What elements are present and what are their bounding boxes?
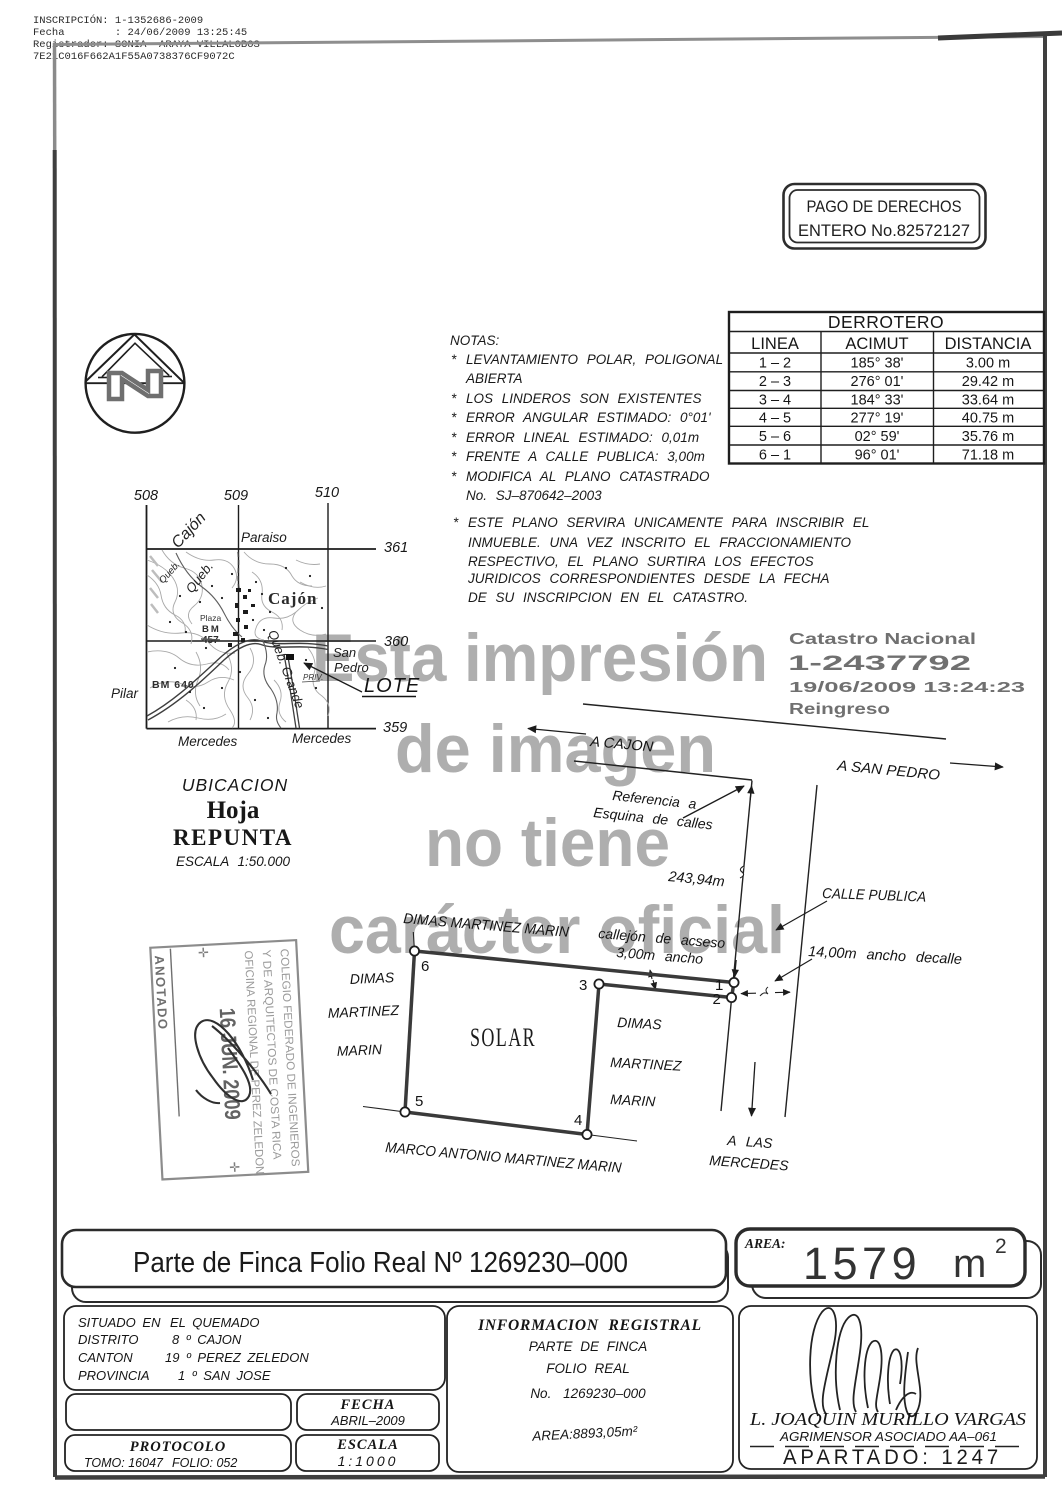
- svg-text:4 – 5: 4 – 5: [759, 411, 791, 427]
- svg-text:8 º CAJON: 8 º CAJON: [172, 1332, 242, 1347]
- svg-text:*: *: [451, 352, 457, 367]
- svg-text:35.76 m: 35.76 m: [962, 429, 1014, 445]
- svg-text:508: 508: [134, 488, 158, 504]
- svg-text:MARCO ANTONIO MARTINEZ MARIN: MARCO ANTONIO MARTINEZ MARIN: [385, 1140, 623, 1177]
- svg-text:RESPECTIVO, EL PLANO SURTIRA L: RESPECTIVO, EL PLANO SURTIRA LOS EFECTOS: [468, 554, 814, 569]
- svg-text:2: 2: [995, 1235, 1007, 1258]
- svg-text:6 – 1: 6 – 1: [759, 448, 791, 464]
- svg-text:361: 361: [384, 540, 408, 556]
- svg-text:AGRIMENSOR ASOCIADO AA–061: AGRIMENSOR ASOCIADO AA–061: [779, 1429, 997, 1444]
- svg-text:ENTERO No.82572127: ENTERO No.82572127: [798, 222, 970, 240]
- svg-text:CANTON: CANTON: [78, 1350, 133, 1365]
- svg-text:SITUADO EN: SITUADO EN: [78, 1315, 161, 1330]
- svg-text:ERROR ANGULAR ESTIMADO: 0°01': ERROR ANGULAR ESTIMADO: 0°01': [466, 410, 711, 425]
- svg-text:3: 3: [579, 977, 587, 994]
- svg-text:MARTINEZ: MARTINEZ: [610, 1054, 682, 1074]
- svg-text:ACIMUT: ACIMUT: [845, 335, 908, 353]
- svg-text:FRENTE A CALLE PUBLICA: 3,00m: FRENTE A CALLE PUBLICA: 3,00m: [466, 449, 705, 464]
- svg-text:FOLIO: 052: FOLIO: 052: [172, 1456, 237, 1470]
- svg-text:DIMAS: DIMAS: [617, 1014, 663, 1032]
- svg-text:1:1000: 1:1000: [338, 1453, 399, 1469]
- svg-text:INFORMACION REGISTRAL: INFORMACION REGISTRAL: [477, 1317, 702, 1334]
- svg-text:A SAN PEDRO: A SAN PEDRO: [836, 758, 941, 784]
- svg-text:33.64 m: 33.64 m: [962, 393, 1014, 409]
- svg-text:EL QUEMADO: EL QUEMADO: [170, 1315, 259, 1330]
- svg-text:96° 01': 96° 01': [855, 448, 900, 464]
- svg-text:LOTE: LOTE: [364, 675, 420, 697]
- svg-text:No. 1269230–000: No. 1269230–000: [530, 1386, 646, 1401]
- svg-text:*: *: [451, 430, 457, 445]
- svg-text:276° 01': 276° 01': [851, 374, 904, 390]
- svg-text:277° 19': 277° 19': [851, 411, 904, 427]
- svg-text:ESCALA 1:50.000: ESCALA 1:50.000: [176, 854, 291, 869]
- svg-text:02° 59': 02° 59': [855, 429, 900, 445]
- svg-text:PROVINCIA: PROVINCIA: [78, 1368, 150, 1383]
- svg-text:1 – 2: 1 – 2: [759, 356, 791, 372]
- svg-text:ABRIL–2009: ABRIL–2009: [330, 1413, 405, 1428]
- svg-text:✛: ✛: [195, 947, 211, 959]
- svg-text:CALLE PUBLICA: CALLE PUBLICA: [822, 886, 926, 906]
- svg-text:Reingreso: Reingreso: [789, 701, 890, 718]
- svg-text:2 – 3: 2 – 3: [759, 374, 791, 390]
- svg-text:m: m: [953, 1242, 986, 1286]
- svg-text:2: 2: [713, 991, 721, 1008]
- svg-text:4: 4: [574, 1112, 582, 1129]
- svg-text:Cajón: Cajón: [268, 589, 317, 608]
- svg-text:PRIV.: PRIV.: [303, 673, 323, 682]
- svg-text:*: *: [451, 391, 457, 406]
- svg-text:Queb.: Queb.: [183, 559, 217, 596]
- svg-text:L. JOAQUIN MURILLO VARGAS: L. JOAQUIN MURILLO VARGAS: [749, 1409, 1026, 1429]
- svg-text:MARIN: MARIN: [336, 1041, 383, 1059]
- svg-text:Parte de Finca Folio Real Nº 1: Parte de Finca Folio Real Nº 1269230–000: [133, 1247, 628, 1279]
- svg-text:ABIERTA: ABIERTA: [465, 371, 523, 386]
- svg-text:*: *: [451, 469, 457, 484]
- svg-text:San: San: [333, 645, 356, 660]
- svg-text:184° 33': 184° 33': [851, 393, 904, 409]
- svg-text:1-2437792: 1-2437792: [788, 652, 971, 675]
- svg-text:PARTE DE FINCA: PARTE DE FINCA: [529, 1339, 648, 1354]
- svg-text:3 – 4: 3 – 4: [759, 393, 791, 409]
- svg-text:UBICACION: UBICACION: [182, 775, 288, 795]
- svg-text:TOMO: 16047: TOMO: 16047: [84, 1456, 164, 1470]
- svg-text:SOLAR: SOLAR: [470, 1023, 536, 1052]
- svg-text:*: *: [451, 449, 457, 464]
- svg-text:Catastro Nacional: Catastro Nacional: [789, 631, 976, 648]
- svg-text:Queb.: Queb.: [157, 559, 182, 586]
- svg-text:PAGO DE DERECHOS: PAGO DE DERECHOS: [807, 198, 962, 216]
- svg-text:A LAS: A LAS: [726, 1132, 774, 1151]
- svg-text:ESTE PLANO SERVIRA UNICAMENTE: ESTE PLANO SERVIRA UNICAMENTE PARA INSCR…: [468, 515, 869, 530]
- svg-text:40.75 m: 40.75 m: [962, 411, 1014, 427]
- svg-text:APARTADO: 1247: APARTADO: 1247: [783, 1446, 1002, 1469]
- svg-text:AREA:: AREA:: [744, 1236, 786, 1251]
- svg-text:510: 510: [315, 485, 339, 501]
- svg-text:Paraiso: Paraiso: [241, 530, 287, 545]
- svg-text:5: 5: [415, 1093, 423, 1110]
- svg-text:6: 6: [421, 958, 429, 975]
- svg-text:LOS LINDEROS SON EXISTENTES: LOS LINDEROS SON EXISTENTES: [466, 391, 702, 406]
- svg-text:185° 38': 185° 38': [851, 356, 904, 372]
- svg-text:7E21C016F662A1F55A0738376CF907: 7E21C016F662A1F55A0738376CF9072C: [33, 51, 235, 63]
- svg-text:*: *: [451, 410, 457, 425]
- svg-text:PROTOCOLO: PROTOCOLO: [130, 1439, 227, 1455]
- svg-text:MERCEDES: MERCEDES: [709, 1152, 790, 1174]
- svg-text:JURIDICOS CORRESPONDIENTES DES: JURIDICOS CORRESPONDIENTES DESDE LA FECH…: [467, 571, 830, 586]
- svg-text:REPUNTA: REPUNTA: [173, 825, 293, 850]
- svg-text:1579: 1579: [803, 1238, 921, 1289]
- svg-text:BM: BM: [202, 624, 221, 635]
- svg-text:509: 509: [224, 488, 248, 504]
- svg-text:INSCRIPCIÓN: 1-1352686-2009: INSCRIPCIÓN: 1-1352686-2009: [33, 13, 203, 27]
- svg-text:BM 640: BM 640: [152, 679, 195, 691]
- svg-text:Fecha : 24/06/2009 13:2: Fecha : 24/06/2009 13:25:45: [33, 27, 247, 39]
- svg-text:DIMAS: DIMAS: [349, 969, 395, 987]
- svg-text:5 – 6: 5 – 6: [759, 429, 791, 445]
- svg-text:FOLIO REAL: FOLIO REAL: [546, 1361, 630, 1376]
- svg-text:14,00m ancho decalle: 14,00m ancho decalle: [808, 944, 963, 968]
- svg-text:NOTAS:: NOTAS:: [450, 333, 500, 348]
- svg-text:71.18 m: 71.18 m: [962, 448, 1014, 464]
- svg-text:DERROTERO: DERROTERO: [828, 312, 944, 332]
- svg-text:DE SU INSCRIPCION EN EL CATAST: DE SU INSCRIPCION EN EL CATASTRO.: [468, 590, 748, 605]
- svg-text:de imagen: de imagen: [395, 711, 716, 787]
- svg-text:ERROR LINEAL ESTIMADO: 0,01m: ERROR LINEAL ESTIMADO: 0,01m: [466, 430, 699, 445]
- svg-text:1 º SAN JOSE: 1 º SAN JOSE: [178, 1368, 271, 1383]
- svg-text:Mercedes: Mercedes: [178, 734, 238, 749]
- svg-text:19 º PEREZ ZELEDON: 19 º PEREZ ZELEDON: [165, 1350, 309, 1365]
- svg-text:360: 360: [384, 634, 408, 650]
- svg-text:✛: ✛: [227, 1161, 243, 1173]
- svg-text:No. SJ–870642–2003: No. SJ–870642–2003: [466, 488, 602, 503]
- svg-text:MODIFICA AL PLANO CATASTRADO: MODIFICA AL PLANO CATASTRADO: [466, 469, 710, 484]
- svg-text:DISTRITO: DISTRITO: [78, 1332, 138, 1347]
- svg-text:*: *: [453, 515, 459, 530]
- svg-text:Hoja: Hoja: [207, 797, 260, 824]
- svg-text:243,94m: 243,94m: [667, 869, 726, 890]
- svg-text:19/06/2009 13:24:23: 19/06/2009 13:24:23: [789, 680, 1025, 696]
- svg-text:LEVANTAMIENTO POLAR, POLIGONAL: LEVANTAMIENTO POLAR, POLIGONAL: [466, 352, 723, 367]
- svg-text:3.00 m: 3.00 m: [966, 356, 1010, 372]
- svg-text:359: 359: [383, 720, 407, 736]
- svg-text:ESCALA: ESCALA: [336, 1437, 399, 1453]
- svg-text:Pedro: Pedro: [334, 660, 369, 675]
- svg-text:29.42 m: 29.42 m: [962, 374, 1014, 390]
- svg-text:Mercedes: Mercedes: [292, 731, 352, 746]
- svg-text:DISTANCIA: DISTANCIA: [945, 335, 1032, 353]
- svg-text:FECHA: FECHA: [340, 1397, 396, 1413]
- svg-text:LINEA: LINEA: [751, 335, 799, 353]
- svg-text:MARIN: MARIN: [610, 1091, 657, 1109]
- svg-text:Pilar: Pilar: [111, 686, 139, 701]
- svg-text:Cajón: Cajón: [168, 509, 209, 551]
- svg-text:Plaza: Plaza: [200, 613, 222, 623]
- svg-text:INMUEBLE. UNA VEZ INSCRITO EL: INMUEBLE. UNA VEZ INSCRITO EL FRACCIONAM…: [468, 535, 852, 550]
- svg-text:Queb. Grande: Queb. Grande: [265, 628, 307, 711]
- svg-text:MARTINEZ: MARTINEZ: [327, 1002, 399, 1021]
